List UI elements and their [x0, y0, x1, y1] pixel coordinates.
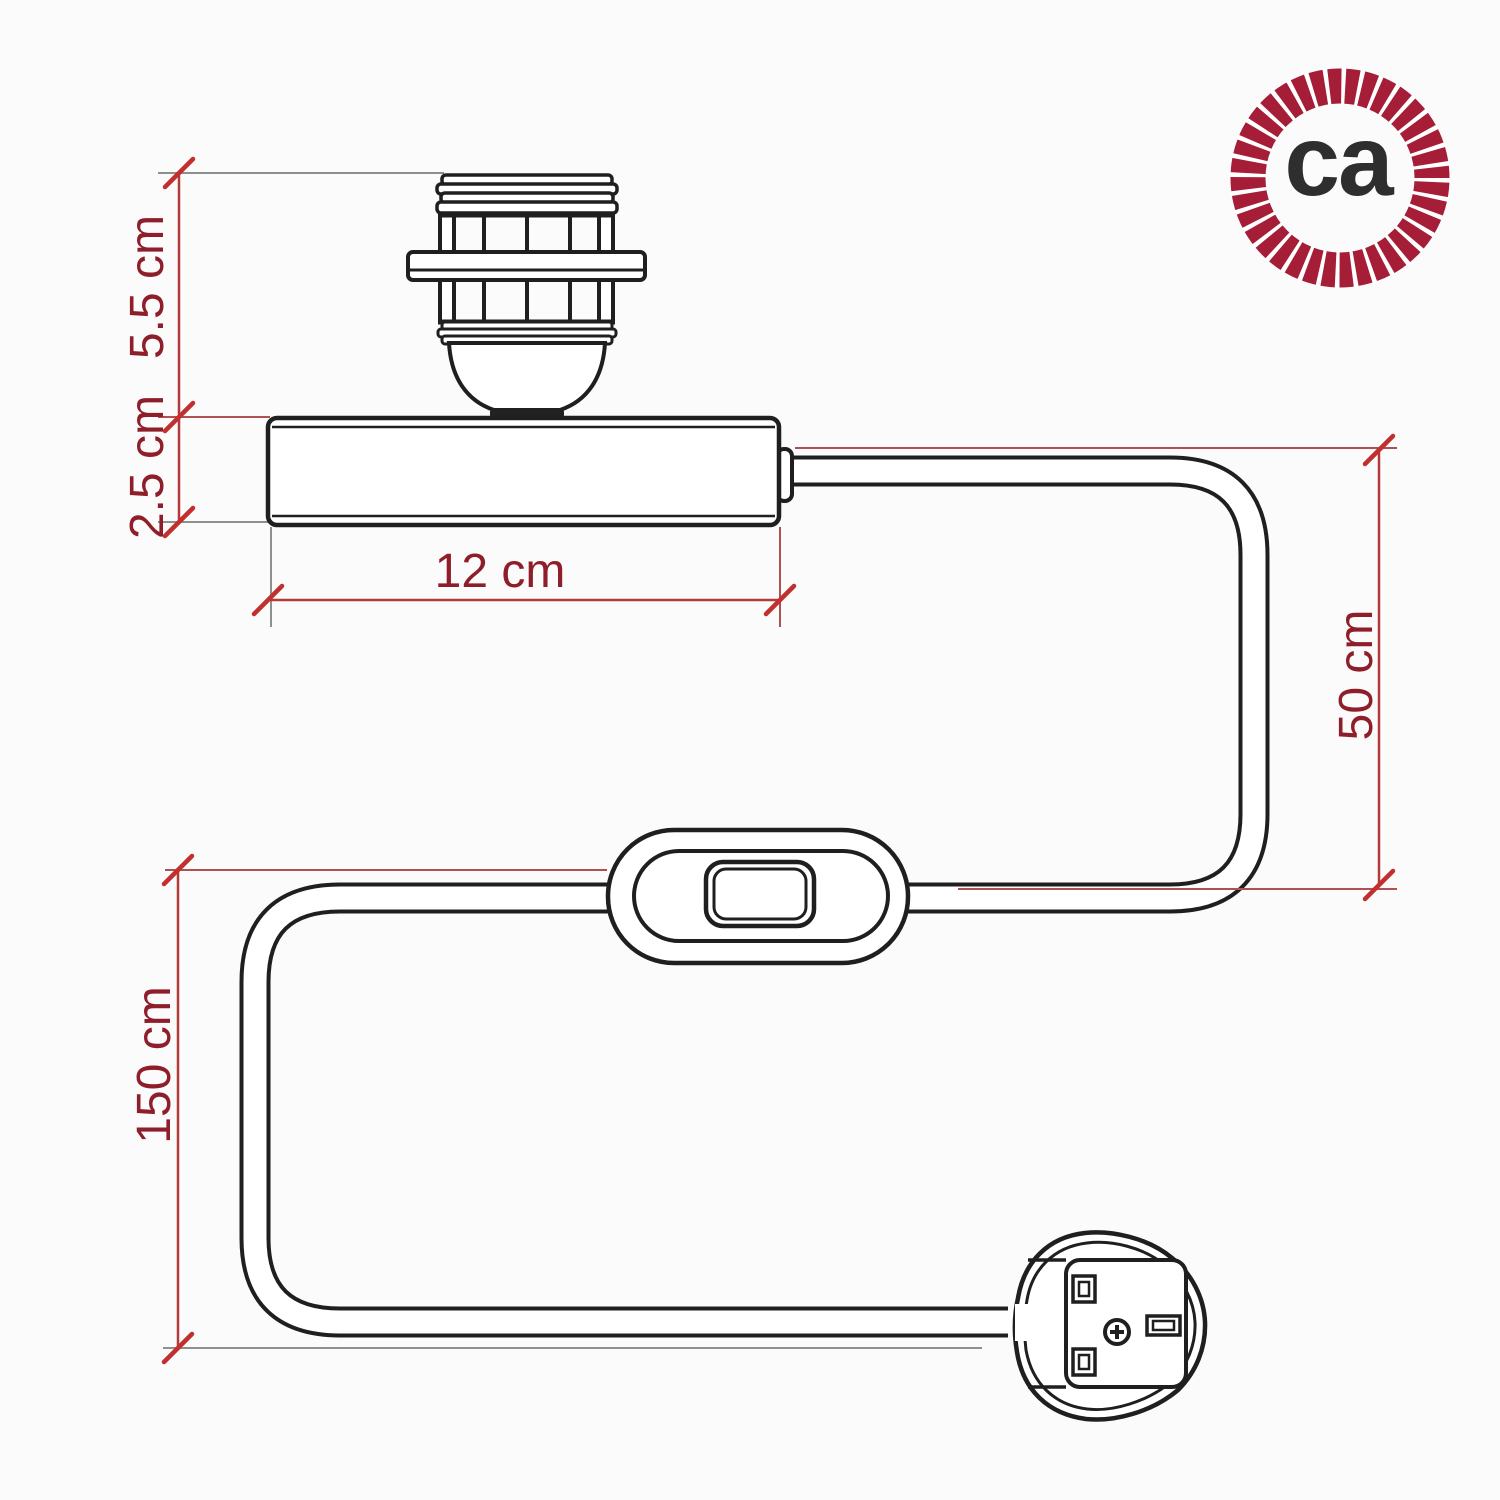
plug-pin-slot-top: [1073, 1276, 1095, 1302]
shade-ring: [408, 252, 645, 280]
switch-button: [706, 862, 814, 926]
dimension-label-socket-height: 5.5 cm: [121, 215, 174, 359]
base-body: [268, 418, 779, 525]
dimension-label-upper-cable: 50 cm: [1330, 610, 1383, 741]
plug-pin-slot-right: [1147, 1316, 1180, 1335]
logo-text: ca: [1284, 105, 1395, 217]
dimension-label-base-width: 12 cm: [435, 545, 566, 598]
dimension-drawing-page: 5.5 cm 2.5 cm 12 cm 50 cm 150 cm ca: [0, 0, 1500, 1500]
socket-dome: [449, 343, 605, 410]
lamp-base: [268, 418, 792, 525]
plug-cable-entry: [1015, 1304, 1064, 1341]
dimension-label-base-height: 2.5 cm: [121, 395, 174, 539]
socket-bottom-threads-icon: [438, 322, 616, 344]
inline-switch: [608, 830, 908, 963]
socket-top-threads-icon: [437, 175, 617, 213]
plug-pin-slot-bottom: [1073, 1349, 1095, 1375]
uk-plug: [1015, 1232, 1205, 1419]
plug-screw-icon: [1105, 1320, 1129, 1344]
dimension-label-lower-cable: 150 cm: [128, 986, 181, 1143]
dimension-drawing: 5.5 cm 2.5 cm 12 cm 50 cm 150 cm ca: [0, 0, 1500, 1500]
